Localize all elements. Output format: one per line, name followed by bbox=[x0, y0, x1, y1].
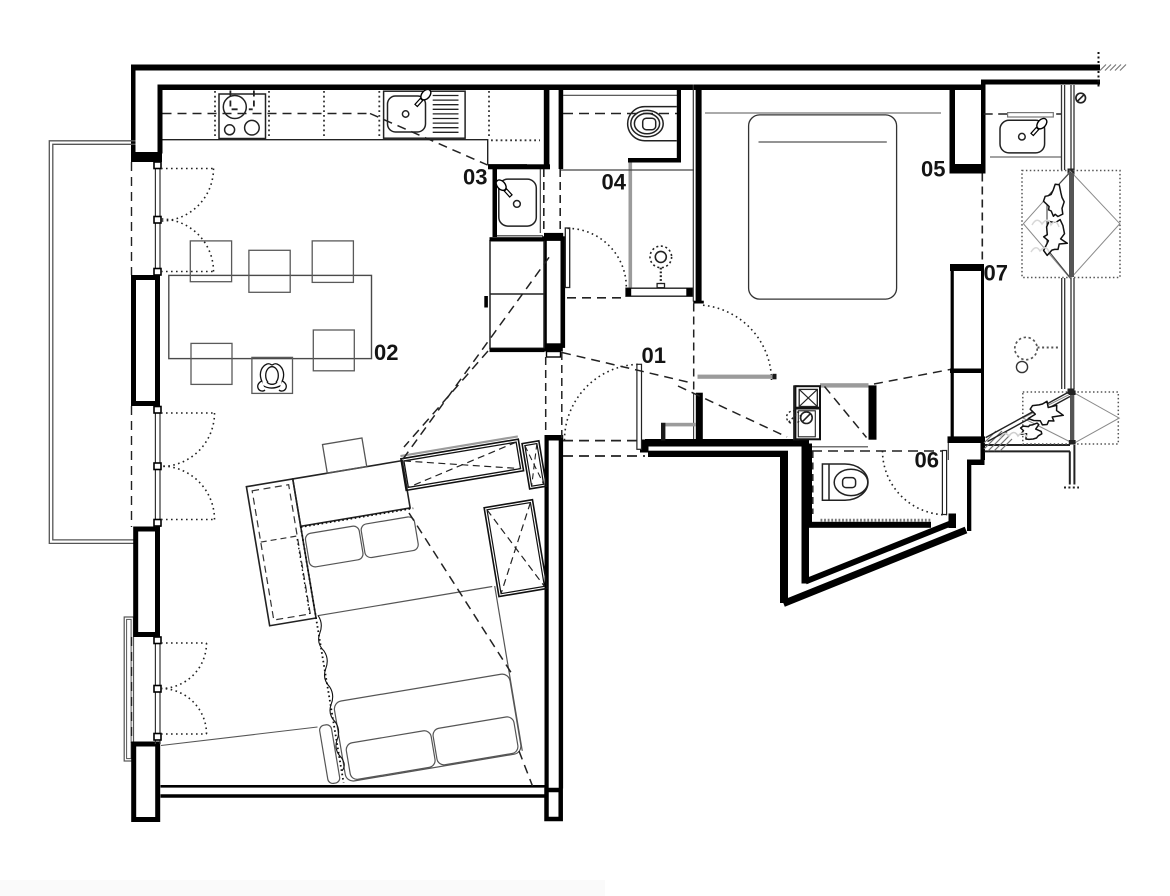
svg-text:01: 01 bbox=[642, 343, 666, 368]
svg-text:03: 03 bbox=[463, 165, 487, 190]
svg-text:05: 05 bbox=[921, 157, 945, 182]
svg-text:02: 02 bbox=[374, 340, 398, 365]
svg-text:07: 07 bbox=[984, 261, 1008, 286]
svg-text:06: 06 bbox=[915, 448, 939, 473]
svg-text:04: 04 bbox=[602, 170, 627, 195]
